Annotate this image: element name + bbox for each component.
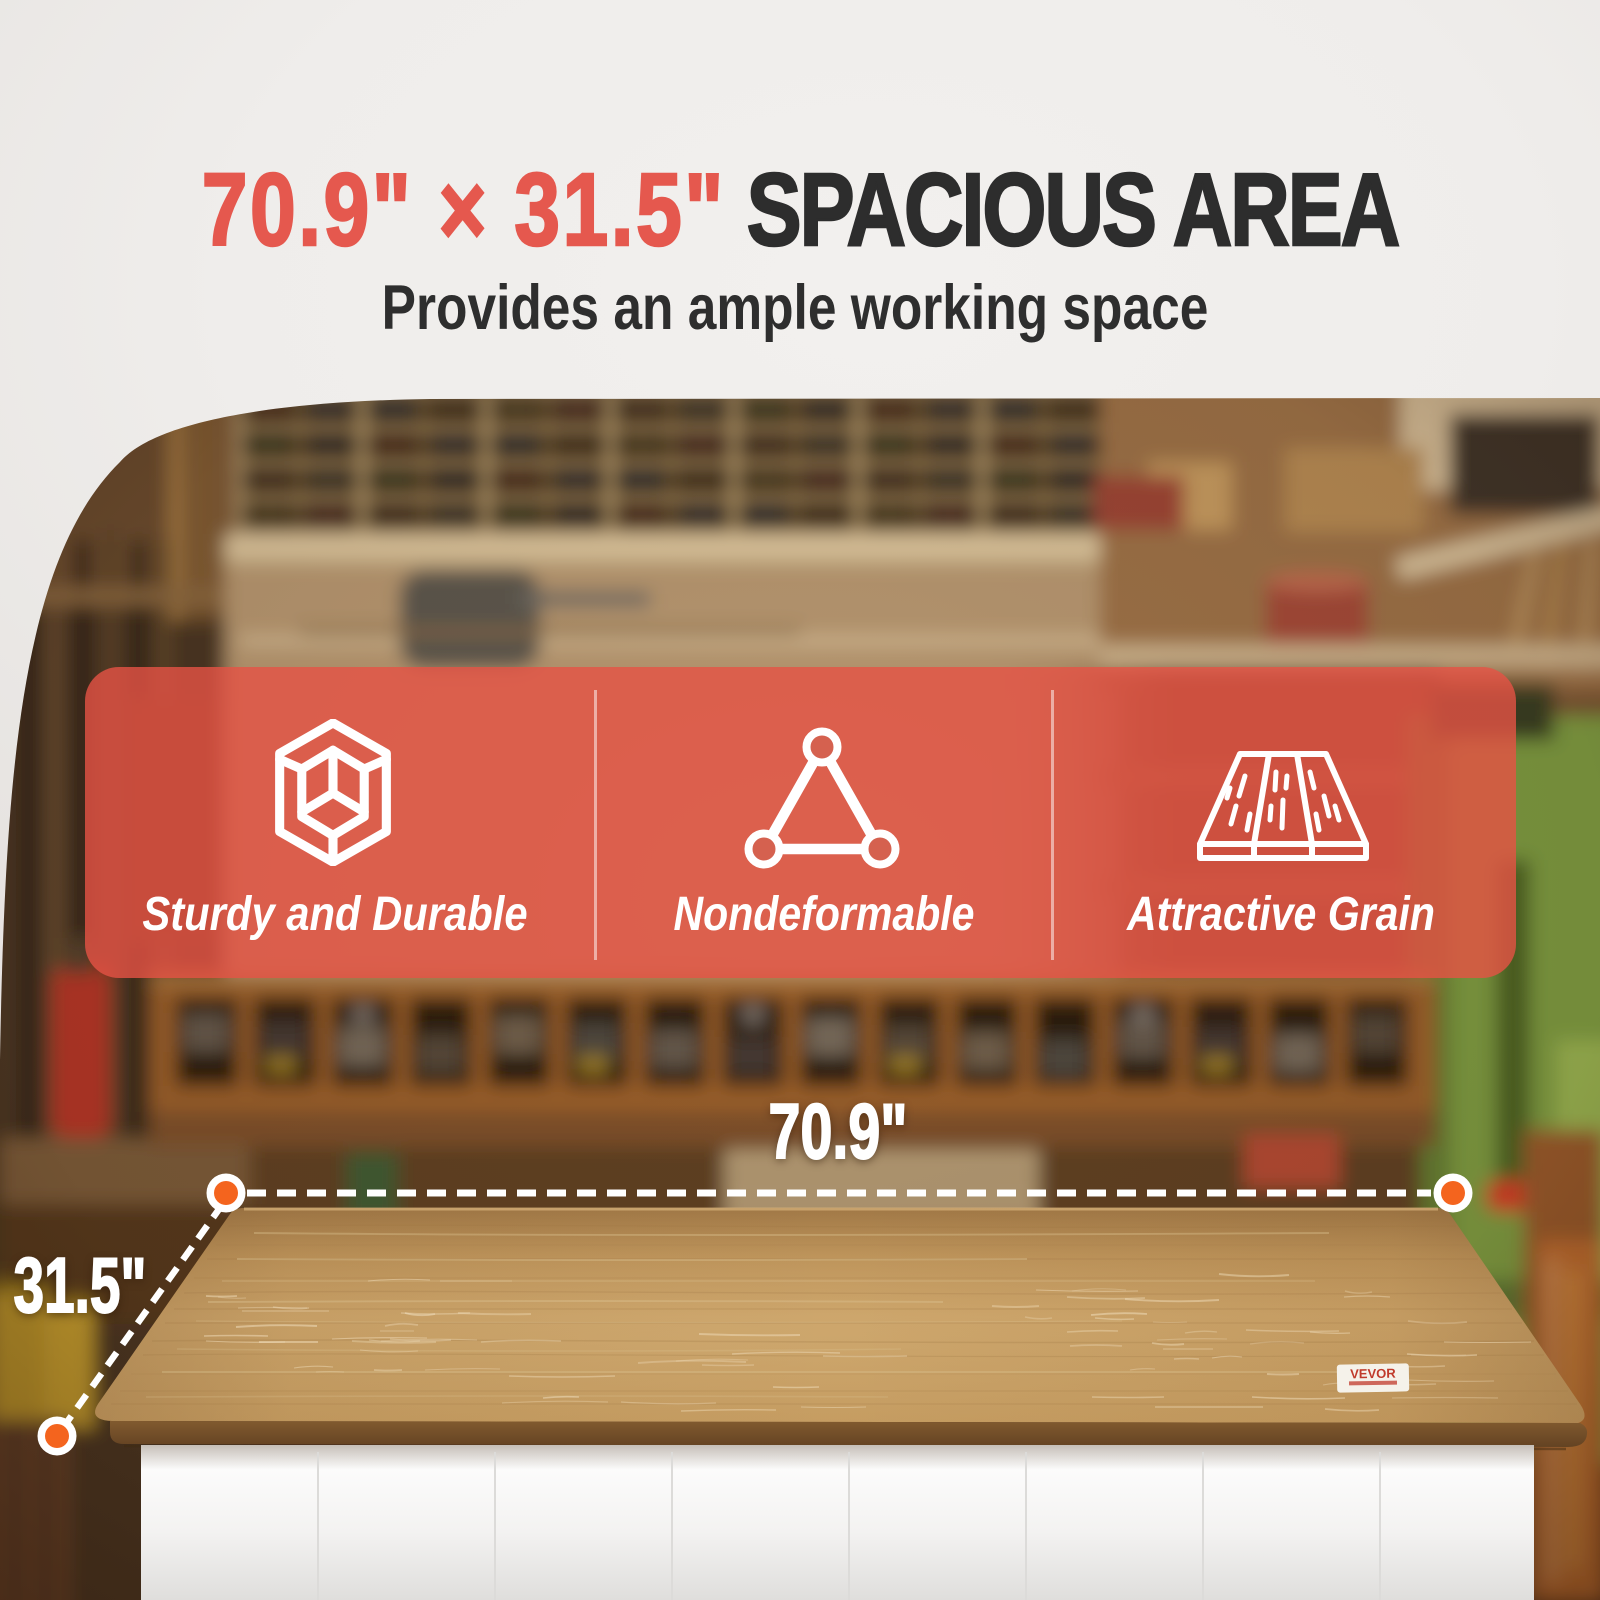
svg-text:VEVOR: VEVOR xyxy=(1350,1366,1396,1382)
